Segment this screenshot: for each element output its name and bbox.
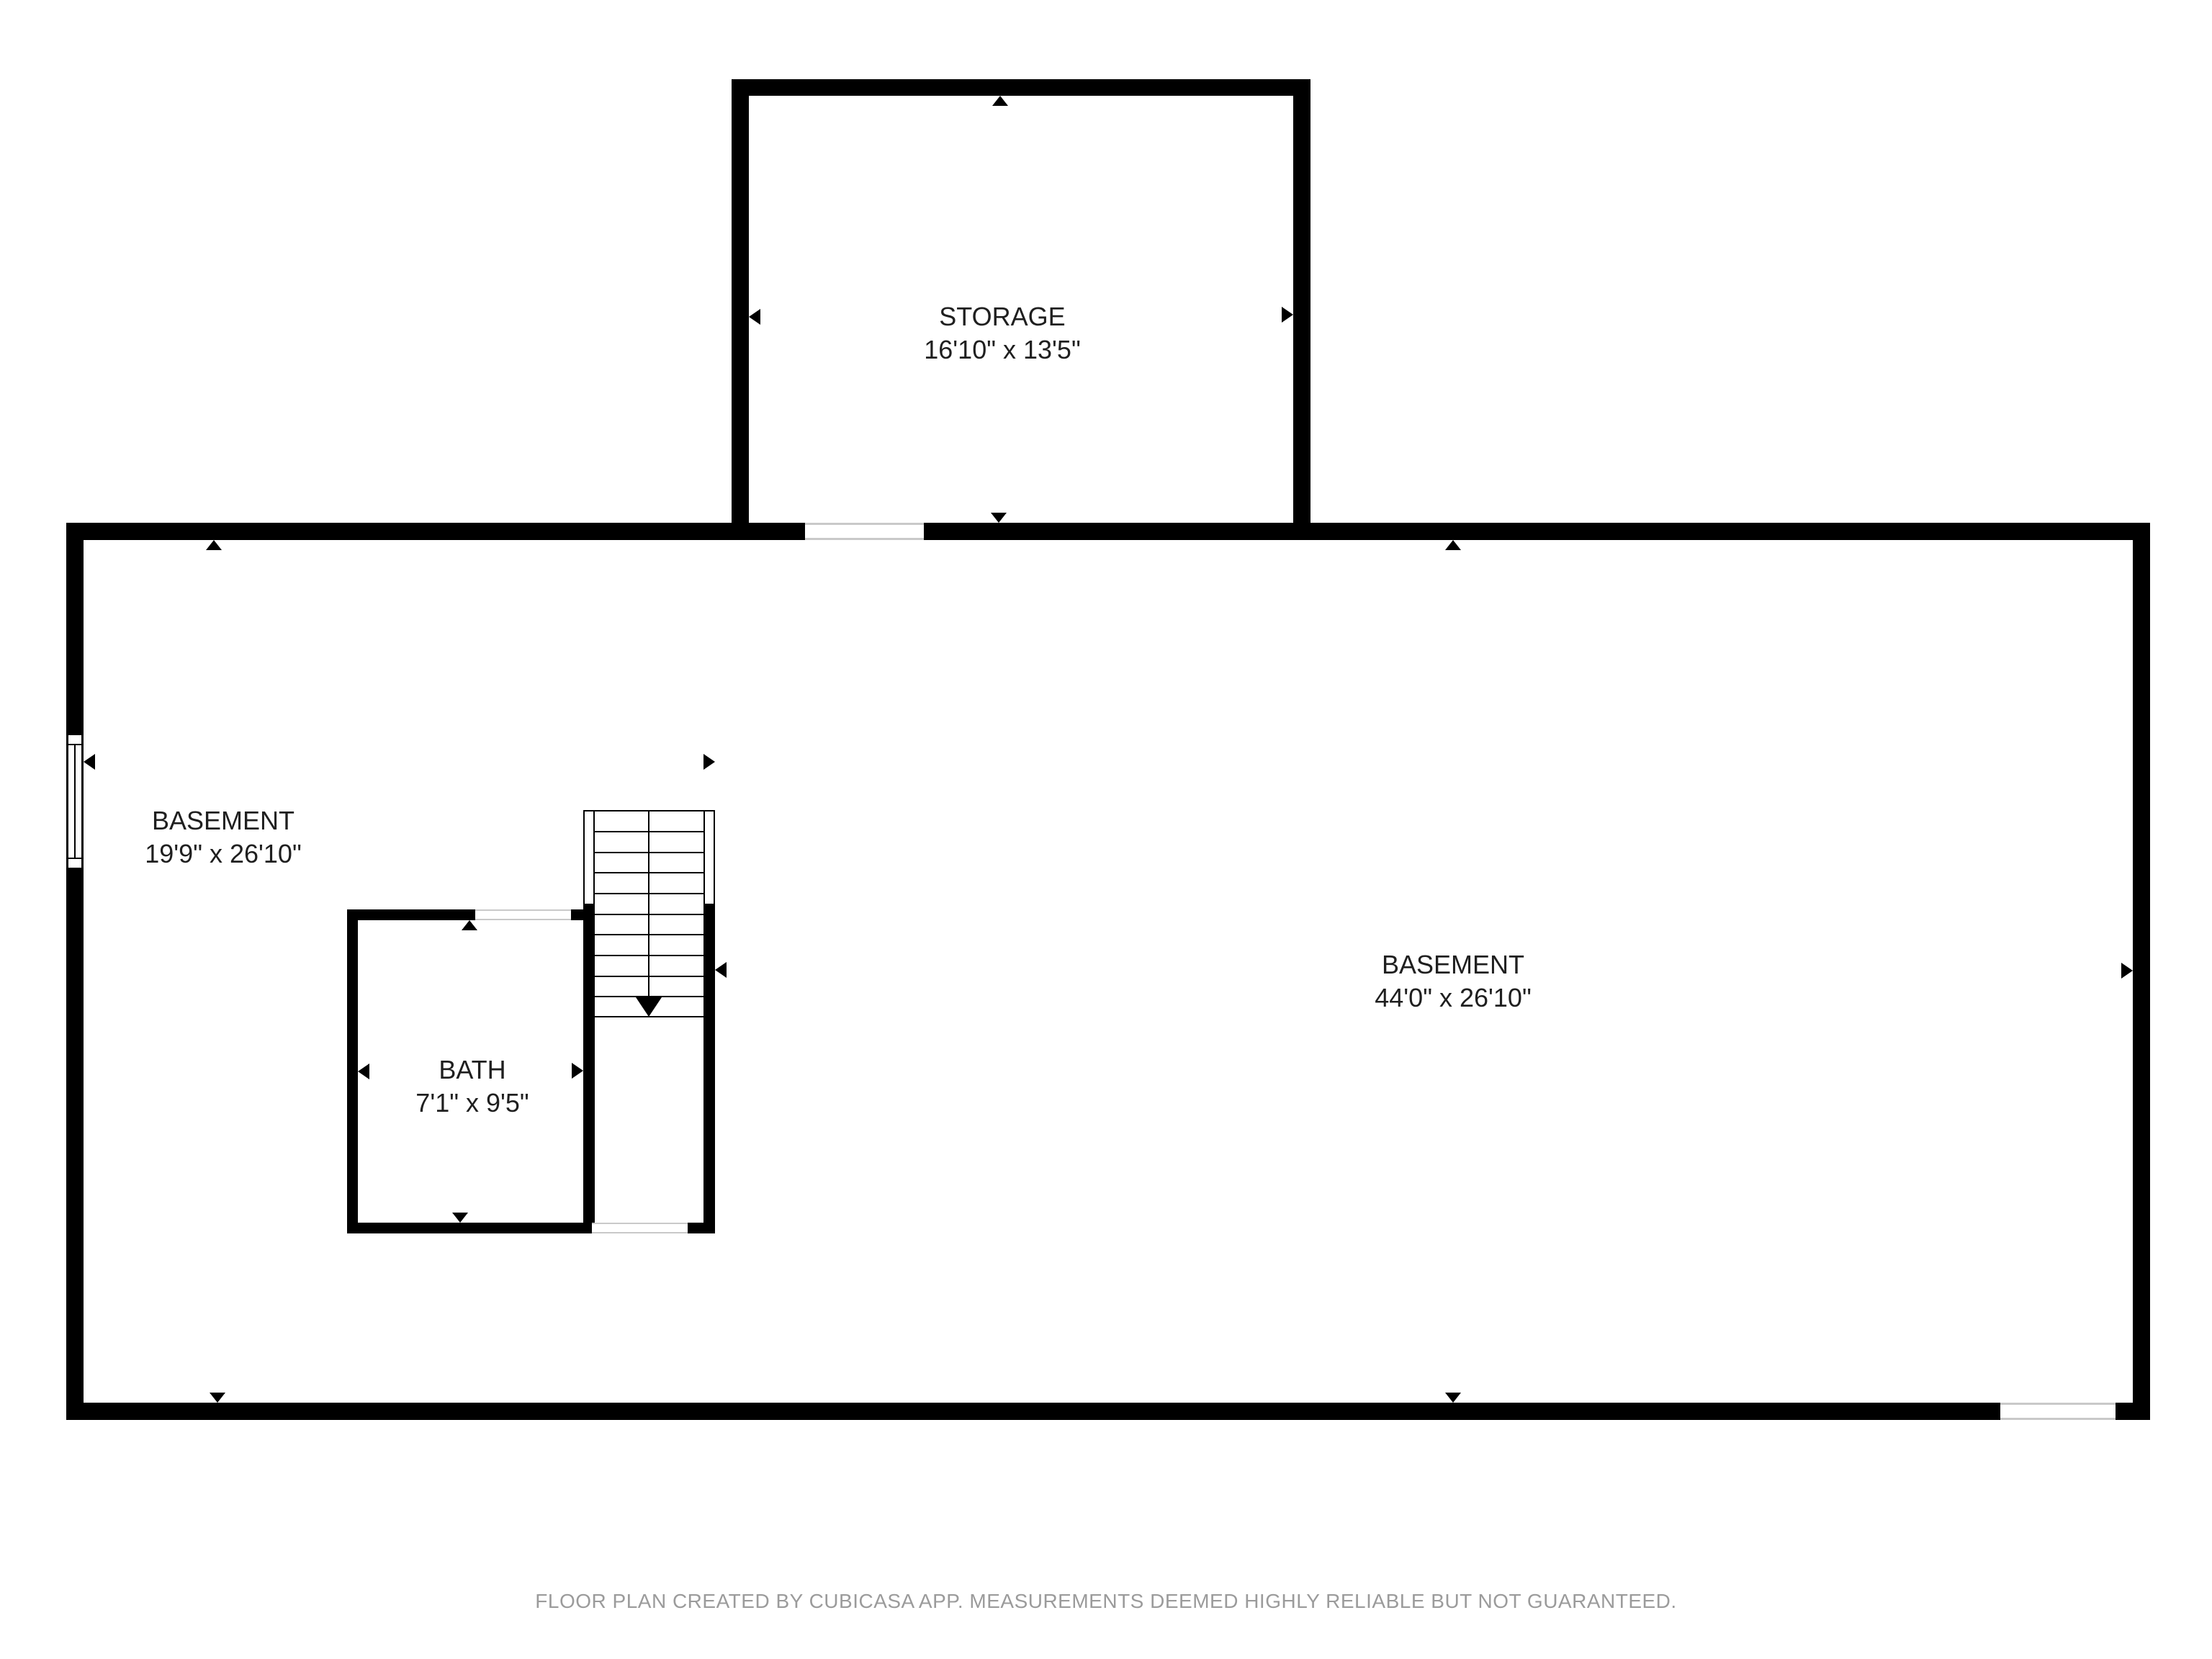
measure-arrow-down-icon xyxy=(991,513,1007,523)
storage-left-wall xyxy=(732,79,749,540)
storage-top-wall xyxy=(732,79,1310,96)
measure-arrow-up-icon xyxy=(206,540,222,550)
room-dimensions: 44'0" x 26'10" xyxy=(1375,981,1531,1015)
measure-arrow-up-icon xyxy=(1445,540,1461,550)
main-top-wall xyxy=(66,523,2150,540)
footer-disclaimer: FLOOR PLAN CREATED BY CUBICASA APP. MEAS… xyxy=(535,1590,1676,1613)
measure-arrow-right-icon xyxy=(703,754,715,770)
stair-corridor-left-wall xyxy=(583,904,595,1223)
room-name: BASEMENT xyxy=(1375,948,1531,981)
measure-arrow-left-icon xyxy=(715,962,727,978)
main-bottom-wall xyxy=(66,1403,2150,1420)
floor-plan-canvas: STORAGE 16'10" x 13'5" BASEMENT 19'9" x … xyxy=(0,0,2212,1659)
measure-arrow-down-icon xyxy=(452,1213,468,1223)
measure-arrow-left-icon xyxy=(84,754,95,770)
bottom-right-door-opening xyxy=(2000,1403,2116,1420)
stair-rail-left xyxy=(583,810,595,905)
measure-arrow-down-icon xyxy=(210,1393,225,1403)
stair-down-arrow-icon xyxy=(636,997,662,1017)
stair-direction-line xyxy=(648,810,649,999)
room-name: STORAGE xyxy=(924,300,1080,333)
measure-arrow-down-icon xyxy=(1445,1393,1461,1403)
measure-arrow-right-icon xyxy=(2121,963,2133,979)
basement-left-room-label: BASEMENT 19'9" x 26'10" xyxy=(145,804,301,871)
storage-room-label: STORAGE 16'10" x 13'5" xyxy=(924,300,1080,367)
window-symbol xyxy=(66,733,84,870)
main-left-wall xyxy=(66,523,84,1420)
bath-room-label: BATH 7'1" x 9'5" xyxy=(415,1053,529,1120)
measure-arrow-right-icon xyxy=(1282,307,1293,323)
stair-corridor-door-opening xyxy=(592,1223,688,1233)
basement-main-room-label: BASEMENT 44'0" x 26'10" xyxy=(1375,948,1531,1015)
stair-rail-right xyxy=(703,810,715,905)
measure-arrow-up-icon xyxy=(992,96,1008,106)
window-centerline xyxy=(74,745,76,858)
room-dimensions: 16'10" x 13'5" xyxy=(924,333,1080,367)
main-right-wall xyxy=(2133,523,2150,1420)
measure-arrow-right-icon xyxy=(572,1063,583,1079)
storage-door-opening xyxy=(805,523,924,540)
measure-arrow-left-icon xyxy=(749,309,760,325)
stair-corridor-right-wall xyxy=(703,902,715,1223)
bath-door-opening xyxy=(475,909,571,920)
measure-arrow-up-icon xyxy=(462,920,477,930)
measure-arrow-left-icon xyxy=(358,1064,369,1079)
room-name: BASEMENT xyxy=(145,804,301,837)
room-name: BATH xyxy=(415,1053,529,1087)
room-dimensions: 19'9" x 26'10" xyxy=(145,837,301,871)
window-cap-bottom xyxy=(68,858,81,859)
bath-left-wall xyxy=(347,909,358,1233)
storage-right-wall xyxy=(1293,79,1310,540)
room-dimensions: 7'1" x 9'5" xyxy=(415,1087,529,1120)
